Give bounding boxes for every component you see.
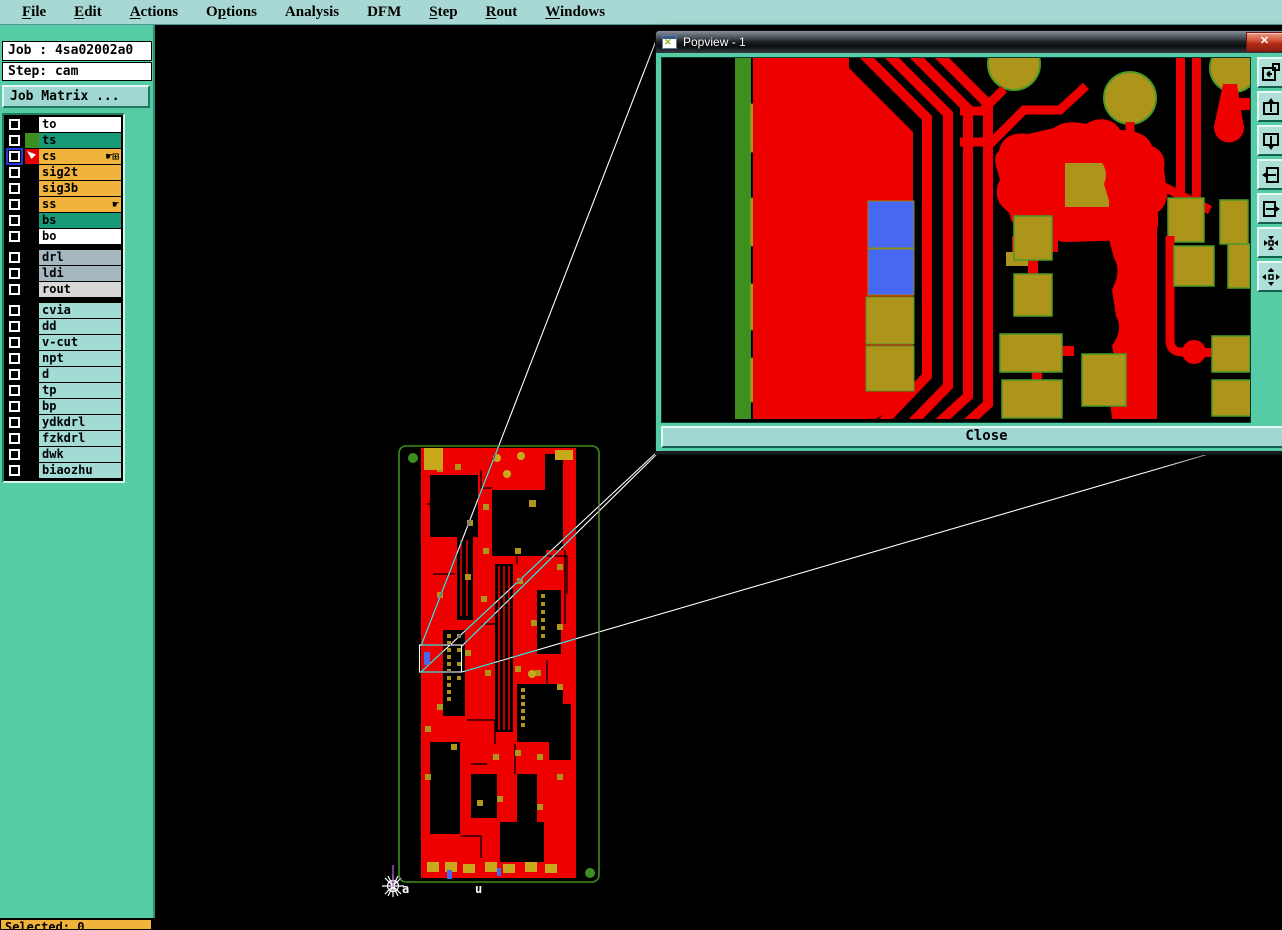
layer-row-ldi[interactable]: ldi (6, 266, 121, 281)
layer-row-d[interactable]: d (6, 367, 121, 382)
layer-swatch-ss[interactable] (25, 197, 39, 212)
layer-row-cs[interactable]: cs☛⊞ (6, 149, 121, 164)
layer-swatch-to[interactable] (25, 117, 39, 132)
pan-down-icon[interactable] (1257, 125, 1282, 156)
layer-row-sig3b[interactable]: sig3b (6, 181, 121, 196)
layer-label-bs: bs (39, 213, 121, 228)
layer-checkbox-dd[interactable] (7, 319, 22, 334)
hand-icon: ☛ (112, 197, 119, 212)
layer-row-bo[interactable]: bo (6, 229, 121, 244)
layer-swatch-dd[interactable] (25, 319, 39, 334)
layer-swatch-ts[interactable] (25, 133, 39, 148)
layer-swatch-tp[interactable] (25, 383, 39, 398)
menu-actions[interactable]: Actions (116, 4, 192, 21)
layer-checkbox-drl[interactable] (7, 250, 22, 265)
layer-label-d: d (39, 367, 121, 382)
layer-row-sig2t[interactable]: sig2t (6, 165, 121, 180)
menu-bar: FileEditActionsOptionsAnalysisDFMStepRou… (0, 0, 1282, 25)
popview-window-icon (662, 35, 677, 49)
layer-label-ydkdrl: ydkdrl (39, 415, 121, 430)
menu-edit[interactable]: Edit (60, 4, 116, 21)
zoom-center-icon[interactable] (1257, 227, 1282, 258)
layer-label-sig2t: sig2t (39, 165, 121, 180)
layer-swatch-bo[interactable] (25, 229, 39, 244)
layer-checkbox-npt[interactable] (7, 351, 22, 366)
pan-up-icon[interactable] (1257, 91, 1282, 122)
pcb-board-graphic (397, 444, 602, 886)
layer-checkbox-cs[interactable] (7, 149, 22, 164)
layer-label-cvia: cvia (39, 303, 121, 318)
menu-file[interactable]: File (8, 4, 60, 21)
layer-label-ts: ts (39, 133, 121, 148)
layer-label-bp: bp (39, 399, 121, 414)
layer-checkbox-to[interactable] (7, 117, 22, 132)
layer-row-ts[interactable]: ts (6, 133, 121, 148)
hand-icon-grid-icon: ☛⊞ (106, 149, 119, 164)
layer-swatch-cvia[interactable] (25, 303, 39, 318)
layer-label-tp: tp (39, 383, 121, 398)
layer-row-drl[interactable]: drl (6, 250, 121, 265)
layer-swatch-ydkdrl[interactable] (25, 415, 39, 430)
layer-label-dwk: dwk (39, 447, 121, 462)
layer-label-ldi: ldi (39, 266, 121, 281)
sidebar: Job : 4sa02002a0 Step: cam Job Matrix ..… (0, 25, 155, 918)
layer-checkbox-cvia[interactable] (7, 303, 22, 318)
step-name-field: Step: cam (2, 62, 152, 81)
layer-label-rout: rout (39, 282, 121, 297)
layer-row-to[interactable]: to (6, 117, 121, 132)
layer-checkbox-ldi[interactable] (7, 266, 22, 281)
popview-pcb-graphic (662, 58, 1250, 419)
layer-row-bp[interactable]: bp (6, 399, 121, 414)
menu-options[interactable]: Options (192, 4, 271, 21)
job-name-field: Job : 4sa02002a0 (2, 41, 152, 61)
menu-rout[interactable]: Rout (472, 4, 532, 21)
layer-swatch-ldi[interactable] (25, 266, 39, 281)
layer-swatch-drl[interactable] (25, 250, 39, 265)
layer-row-biaozhu[interactable]: biaozhu (6, 463, 121, 478)
layer-label-bo: bo (39, 229, 121, 244)
layer-list-panel: totscs☛⊞sig2tsig3bss☛bsbodrlldiroutcviad… (2, 113, 125, 483)
layer-row-dwk[interactable]: dwk (6, 447, 121, 462)
layer-checkbox-dwk[interactable] (7, 447, 22, 462)
layer-checkbox-ydkdrl[interactable] (7, 415, 22, 430)
popview-zoom-view[interactable] (661, 57, 1251, 423)
layer-checkbox-rout[interactable] (7, 282, 22, 297)
layer-checkbox-v-cut[interactable] (7, 335, 22, 350)
layer-swatch-bp[interactable] (25, 399, 39, 414)
new-popview-icon[interactable] (1257, 57, 1282, 88)
status-bar: Selected: 0 (0, 919, 152, 930)
popview-close-bar: Close (656, 424, 1282, 451)
layer-checkbox-ts[interactable] (7, 133, 22, 148)
layer-checkbox-fzkdrl[interactable] (7, 431, 22, 446)
close-window-button[interactable]: ✕ (1246, 32, 1282, 52)
layer-label-drl: drl (39, 250, 121, 265)
layer-row-ydkdrl[interactable]: ydkdrl (6, 415, 121, 430)
toolbar-filler (1257, 295, 1282, 421)
layer-swatch-cs[interactable] (25, 149, 39, 164)
layer-label-sig3b: sig3b (39, 181, 121, 196)
popview-title: Popview - 1 (683, 35, 746, 49)
zoom-out-icon[interactable] (1257, 261, 1282, 292)
layer-checkbox-biaozhu[interactable] (7, 463, 22, 478)
menu-windows[interactable]: Windows (531, 4, 619, 21)
layer-swatch-biaozhu[interactable] (25, 463, 39, 478)
layer-row-fzkdrl[interactable]: fzkdrl (6, 431, 121, 446)
layer-checkbox-ss[interactable] (7, 197, 22, 212)
layer-swatch-rout[interactable] (25, 282, 39, 297)
layer-row-tp[interactable]: tp (6, 383, 121, 398)
layer-checkbox-tp[interactable] (7, 383, 22, 398)
layer-checkbox-d[interactable] (7, 367, 22, 382)
layer-label-biaozhu: biaozhu (39, 463, 121, 478)
layer-checkbox-bo[interactable] (7, 229, 22, 244)
popview-toolbar (1251, 57, 1282, 421)
layer-label-fzkdrl: fzkdrl (39, 431, 121, 446)
menu-step[interactable]: Step (415, 4, 471, 21)
layer-row-rout[interactable]: rout (6, 282, 121, 297)
layer-checkbox-bp[interactable] (7, 399, 22, 414)
layer-row-ss[interactable]: ss☛ (6, 197, 121, 212)
layer-row-cvia[interactable]: cvia (6, 303, 121, 318)
layer-checkbox-bs[interactable] (7, 213, 22, 228)
layer-label-v-cut: v-cut (39, 335, 121, 350)
menu-analysis[interactable]: Analysis (271, 4, 353, 21)
layer-swatch-v-cut[interactable] (25, 335, 39, 350)
layer-label-dd: dd (39, 319, 121, 334)
layer-swatch-npt[interactable] (25, 351, 39, 366)
layer-row-v-cut[interactable]: v-cut (6, 335, 121, 350)
layer-label-npt: npt (39, 351, 121, 366)
popview-titlebar[interactable]: Popview - 1 ✕ (656, 31, 1282, 53)
layer-swatch-fzkdrl[interactable] (25, 431, 39, 446)
layer-row-npt[interactable]: npt (6, 351, 121, 366)
layer-label-cs: cs☛⊞ (39, 149, 121, 164)
layer-swatch-sig3b[interactable] (25, 181, 39, 196)
layer-swatch-bs[interactable] (25, 213, 39, 228)
layer-row-bs[interactable]: bs (6, 213, 121, 228)
job-matrix-button[interactable]: Job Matrix ... (2, 85, 150, 108)
close-popview-button[interactable]: Close (661, 426, 1282, 448)
popview-window: Popview - 1 ✕ (655, 30, 1282, 455)
layer-row-dd[interactable]: dd (6, 319, 121, 334)
layer-checkbox-sig3b[interactable] (7, 181, 22, 196)
pan-right-icon[interactable] (1257, 193, 1282, 224)
layer-checkbox-sig2t[interactable] (7, 165, 22, 180)
pan-left-icon[interactable] (1257, 159, 1282, 190)
menu-dfm[interactable]: DFM (353, 4, 415, 21)
layer-swatch-dwk[interactable] (25, 447, 39, 462)
layer-label-to: to (39, 117, 121, 132)
layer-label-ss: ss☛ (39, 197, 121, 212)
layer-swatch-d[interactable] (25, 367, 39, 382)
layer-swatch-sig2t[interactable] (25, 165, 39, 180)
